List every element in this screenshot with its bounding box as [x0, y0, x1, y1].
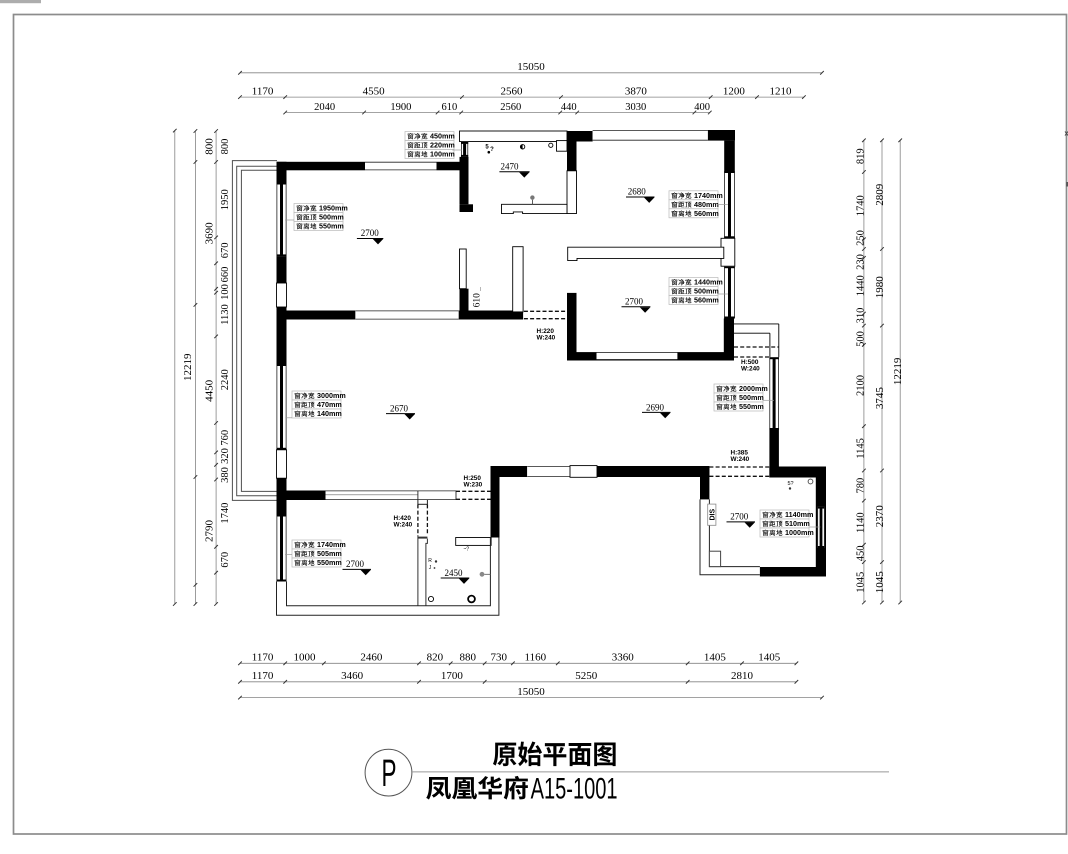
svg-text:1980: 1980	[874, 276, 886, 299]
svg-text:440: 440	[561, 102, 577, 113]
svg-text:820: 820	[427, 652, 444, 664]
svg-text:2100: 2100	[855, 375, 866, 396]
svg-text:15050: 15050	[517, 686, 545, 698]
svg-text:100: 100	[220, 284, 231, 300]
svg-text:320: 320	[220, 448, 231, 464]
svg-text:310: 310	[855, 308, 866, 324]
svg-text:12219: 12219	[182, 353, 194, 381]
svg-text:1740: 1740	[220, 503, 231, 524]
svg-text:1740mm: 1740mm	[694, 191, 723, 200]
svg-text:W:240: W:240	[741, 365, 760, 372]
svg-text:R: R	[428, 558, 432, 564]
svg-text:1440mm: 1440mm	[694, 278, 723, 287]
svg-text:2560: 2560	[501, 86, 524, 98]
svg-text:140mm: 140mm	[317, 409, 342, 418]
svg-text:W:230: W:230	[464, 482, 483, 489]
svg-text:2700: 2700	[346, 560, 364, 570]
svg-text:1000mm: 1000mm	[785, 528, 814, 537]
svg-text:560mm: 560mm	[694, 209, 719, 218]
svg-text:1045: 1045	[874, 571, 886, 594]
svg-text:1740mm: 1740mm	[317, 540, 346, 549]
svg-text:3745: 3745	[874, 387, 886, 410]
svg-text:3030: 3030	[625, 102, 646, 113]
svg-text:510mm: 510mm	[785, 519, 810, 528]
svg-text:500mm: 500mm	[319, 213, 344, 222]
svg-text:610: 610	[473, 293, 483, 308]
svg-text:800: 800	[203, 138, 215, 155]
svg-text:1145: 1145	[855, 438, 866, 459]
svg-text:12219: 12219	[892, 357, 904, 385]
svg-text:100mm: 100mm	[430, 150, 455, 159]
svg-text:480mm: 480mm	[694, 200, 719, 209]
svg-text:450: 450	[855, 546, 866, 562]
svg-text:4550: 4550	[363, 86, 386, 98]
svg-text:3690: 3690	[203, 222, 215, 245]
svg-text:1000: 1000	[294, 652, 317, 664]
svg-text:1900: 1900	[390, 102, 411, 113]
svg-text:2790: 2790	[203, 520, 215, 543]
svg-text:1170: 1170	[252, 86, 274, 98]
svg-text:1950: 1950	[220, 189, 231, 210]
svg-text:DIS: DIS	[709, 509, 716, 521]
svg-text:2240: 2240	[220, 369, 231, 390]
svg-text:450mm: 450mm	[430, 132, 455, 141]
svg-text:1140: 1140	[855, 512, 866, 533]
svg-text:5?: 5?	[788, 481, 794, 487]
svg-text:5250: 5250	[575, 670, 598, 682]
svg-text:1210: 1210	[770, 86, 793, 98]
svg-text:P: P	[382, 753, 397, 795]
svg-text:1950mm: 1950mm	[319, 204, 348, 213]
svg-text:610: 610	[442, 102, 458, 113]
svg-text:500mm: 500mm	[694, 287, 719, 296]
svg-text:550mm: 550mm	[317, 558, 342, 567]
svg-text:1405: 1405	[758, 652, 781, 664]
svg-text:670: 670	[220, 243, 231, 259]
svg-text:2700: 2700	[730, 513, 748, 523]
svg-text:2700: 2700	[361, 229, 379, 239]
svg-text:550mm: 550mm	[739, 402, 764, 411]
svg-text:250: 250	[855, 230, 866, 246]
svg-text:2000mm: 2000mm	[739, 384, 768, 393]
svg-text:2680: 2680	[628, 187, 646, 197]
svg-text:500: 500	[855, 331, 866, 347]
svg-text:800: 800	[220, 139, 231, 155]
svg-text:3000mm: 3000mm	[317, 391, 346, 400]
svg-text:220mm: 220mm	[430, 141, 455, 150]
svg-text:A15-1001: A15-1001	[531, 773, 618, 806]
svg-text:1440: 1440	[855, 275, 866, 296]
svg-text:1170: 1170	[252, 670, 274, 682]
svg-text:2560: 2560	[500, 102, 521, 113]
svg-text:2700: 2700	[625, 298, 643, 308]
svg-text:~?: ~?	[463, 547, 469, 553]
svg-text:3460: 3460	[341, 670, 364, 682]
svg-text:400: 400	[694, 102, 710, 113]
svg-text:1130: 1130	[220, 304, 231, 325]
svg-text:505mm: 505mm	[317, 549, 342, 558]
svg-text:2460: 2460	[360, 652, 383, 664]
svg-text:2670: 2670	[390, 405, 408, 415]
svg-text:660: 660	[220, 267, 231, 283]
svg-text:W:240: W:240	[731, 456, 750, 463]
svg-text:500mm: 500mm	[739, 393, 764, 402]
svg-text:380: 380	[220, 467, 231, 483]
svg-text:1045: 1045	[855, 572, 866, 593]
svg-text:550mm: 550mm	[319, 222, 344, 231]
svg-text:819: 819	[855, 148, 866, 164]
svg-text:230: 230	[855, 254, 866, 270]
svg-text:1200: 1200	[723, 86, 746, 98]
svg-text:730: 730	[491, 652, 508, 664]
svg-text:1160: 1160	[525, 652, 547, 664]
svg-text:3360: 3360	[612, 652, 635, 664]
svg-text:1740: 1740	[855, 195, 866, 216]
svg-text:2040: 2040	[314, 102, 335, 113]
svg-text:560mm: 560mm	[694, 296, 719, 305]
svg-text:W:240: W:240	[537, 334, 556, 341]
svg-text:2450: 2450	[445, 569, 463, 579]
svg-text:760: 760	[220, 430, 231, 446]
svg-text:4450: 4450	[203, 379, 215, 402]
svg-text:2809: 2809	[874, 183, 886, 206]
svg-text:880: 880	[459, 652, 476, 664]
svg-text:470mm: 470mm	[317, 400, 342, 409]
svg-text:?: ?	[490, 147, 494, 153]
svg-text:670: 670	[220, 552, 231, 568]
svg-text:15050: 15050	[517, 61, 545, 73]
svg-text:W:240: W:240	[394, 521, 413, 528]
svg-text:1170: 1170	[252, 652, 274, 664]
svg-text:780: 780	[855, 478, 866, 494]
svg-text:2370: 2370	[874, 505, 886, 528]
svg-text:1140mm: 1140mm	[785, 510, 813, 519]
svg-text:3870: 3870	[625, 86, 648, 98]
svg-text:2810: 2810	[731, 670, 754, 682]
svg-text:1405: 1405	[704, 652, 727, 664]
svg-text:1700: 1700	[441, 670, 464, 682]
